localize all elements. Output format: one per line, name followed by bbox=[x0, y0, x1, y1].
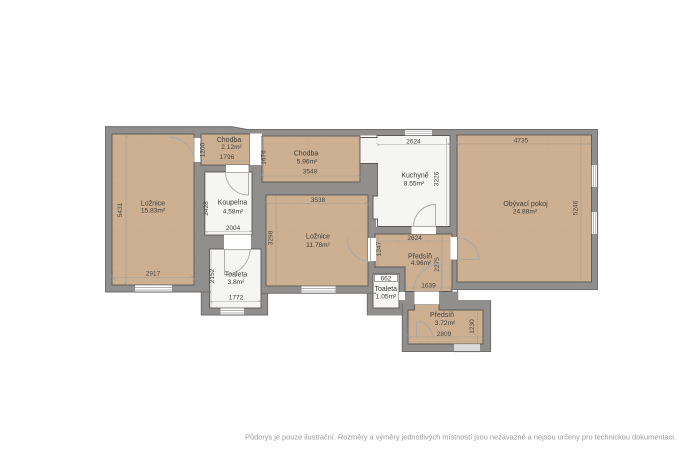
svg-text:2917: 2917 bbox=[146, 271, 161, 278]
svg-text:1639: 1639 bbox=[421, 283, 436, 290]
svg-text:2809: 2809 bbox=[437, 331, 452, 338]
svg-text:11.78m²: 11.78m² bbox=[306, 242, 331, 249]
svg-text:15.83m²: 15.83m² bbox=[141, 208, 166, 215]
svg-text:2275: 2275 bbox=[434, 257, 441, 272]
svg-text:1247: 1247 bbox=[376, 241, 383, 256]
svg-text:2004: 2004 bbox=[226, 225, 241, 232]
svg-text:5431: 5431 bbox=[117, 202, 124, 217]
svg-text:3298: 3298 bbox=[268, 230, 275, 245]
svg-text:Koupelna: Koupelna bbox=[218, 200, 248, 207]
svg-text:2.12m²: 2.12m² bbox=[221, 144, 242, 151]
svg-text:2624: 2624 bbox=[406, 139, 421, 146]
svg-text:1676: 1676 bbox=[261, 150, 268, 165]
svg-text:Obývací pokoj: Obývací pokoj bbox=[503, 201, 548, 208]
svg-text:4.58m²: 4.58m² bbox=[223, 209, 244, 216]
svg-text:1230: 1230 bbox=[469, 319, 476, 334]
svg-text:Půdorys je pouze ilustrační. R: Půdorys je pouze ilustrační. Rozměry a v… bbox=[245, 433, 676, 442]
svg-text:Předsíň: Předsíň bbox=[430, 312, 454, 319]
svg-text:5246: 5246 bbox=[573, 200, 580, 215]
svg-text:1796: 1796 bbox=[220, 154, 235, 161]
svg-text:3538: 3538 bbox=[311, 197, 326, 204]
svg-text:2152: 2152 bbox=[209, 268, 216, 283]
svg-text:Ložnice: Ložnice bbox=[141, 201, 165, 208]
svg-text:662: 662 bbox=[381, 276, 392, 283]
svg-text:Kuchyně: Kuchyně bbox=[401, 173, 428, 180]
svg-text:Chodba: Chodba bbox=[217, 137, 242, 144]
svg-text:Toaleta: Toaleta bbox=[225, 272, 248, 279]
svg-text:Toaleta: Toaleta bbox=[375, 286, 398, 293]
svg-text:4.96m²: 4.96m² bbox=[411, 260, 432, 267]
svg-text:2428: 2428 bbox=[203, 201, 210, 216]
svg-text:4735: 4735 bbox=[514, 138, 529, 145]
svg-text:Chodba: Chodba bbox=[294, 151, 319, 158]
svg-text:Ložnice: Ložnice bbox=[306, 234, 330, 241]
svg-text:2624: 2624 bbox=[407, 235, 422, 242]
svg-text:5.96m²: 5.96m² bbox=[297, 159, 318, 166]
svg-text:3548: 3548 bbox=[303, 169, 318, 176]
svg-text:3.72m²: 3.72m² bbox=[435, 320, 456, 327]
svg-text:1.05m²: 1.05m² bbox=[376, 294, 397, 301]
svg-text:24.88m²: 24.88m² bbox=[513, 209, 538, 216]
svg-text:1772: 1772 bbox=[229, 295, 244, 302]
svg-text:8.55m²: 8.55m² bbox=[404, 181, 425, 188]
svg-text:1200: 1200 bbox=[200, 142, 207, 157]
svg-text:3.8m²: 3.8m² bbox=[228, 279, 246, 286]
svg-text:3226: 3226 bbox=[434, 171, 441, 186]
